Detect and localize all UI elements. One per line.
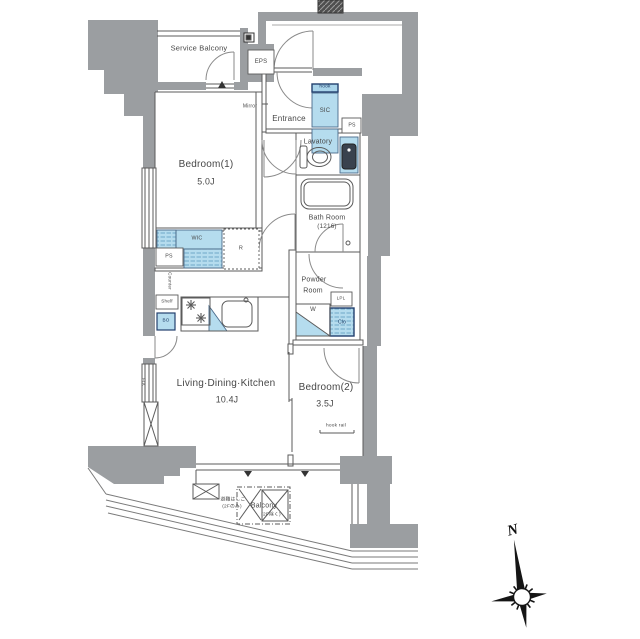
stove-icon	[182, 298, 210, 325]
entrance-label: Entrance	[272, 115, 306, 123]
ladder-note-label-1: 避難はしご	[221, 499, 246, 504]
bathtub-icon	[301, 179, 353, 245]
washer-label: W	[310, 307, 316, 313]
sic-label: SIC	[320, 108, 331, 114]
fix-window-label: FIX	[141, 378, 146, 386]
powder-room-label-2: Room	[303, 288, 322, 295]
walls-layer	[88, 0, 418, 548]
bedroom2-size-label: 3.5J	[316, 400, 333, 409]
balcony-note-label: (2F除く)	[261, 514, 281, 519]
bath-size-label: (1216)	[317, 224, 336, 230]
sic-hook-label: hook	[319, 86, 330, 91]
ldk-label: Living·Dining·Kitchen	[177, 379, 276, 389]
compass-icon	[483, 536, 551, 632]
hook-rail-label: hook rail	[326, 425, 346, 430]
sink-icon	[222, 298, 252, 327]
bath-room-label: Bath Room	[309, 215, 346, 222]
shelf-label: Shelf	[161, 300, 172, 305]
ldk-size-label: 10.4J	[216, 396, 239, 405]
floorplan: Service Balcony EPS Entrance Mirror hook…	[0, 0, 640, 639]
lavatory-label: Lavatory	[304, 139, 332, 146]
bedroom2-label: Bedroom(2)	[299, 383, 354, 393]
service-balcony-label: Service Balcony	[171, 44, 228, 52]
ps-upper-label: PS	[348, 123, 355, 128]
bedroom1-label: Bedroom(1)	[179, 160, 234, 170]
floorplan-drawing	[0, 0, 640, 639]
powder-room-label-1: Powder	[302, 277, 327, 284]
ps-lower-label: PS	[165, 254, 172, 259]
bedroom1-size-label: 5.0J	[197, 178, 214, 187]
wic-label: WIC	[192, 236, 203, 241]
bottle-box-label: BO	[162, 319, 169, 324]
closet-label: Clo	[338, 321, 346, 326]
eps-label: EPS	[255, 59, 268, 65]
mirror-label: Mirror	[243, 105, 257, 110]
upl-label: LPL	[337, 297, 346, 302]
vanity-sink-icon	[342, 144, 356, 169]
counter-label: Counter	[167, 272, 172, 290]
ladder-note-label-2: (2Fのみ)	[222, 506, 242, 511]
refrigerator-label: R	[239, 246, 243, 252]
balcony-label: Balcony	[251, 503, 277, 510]
evacuation-ladder-icon	[193, 484, 219, 499]
